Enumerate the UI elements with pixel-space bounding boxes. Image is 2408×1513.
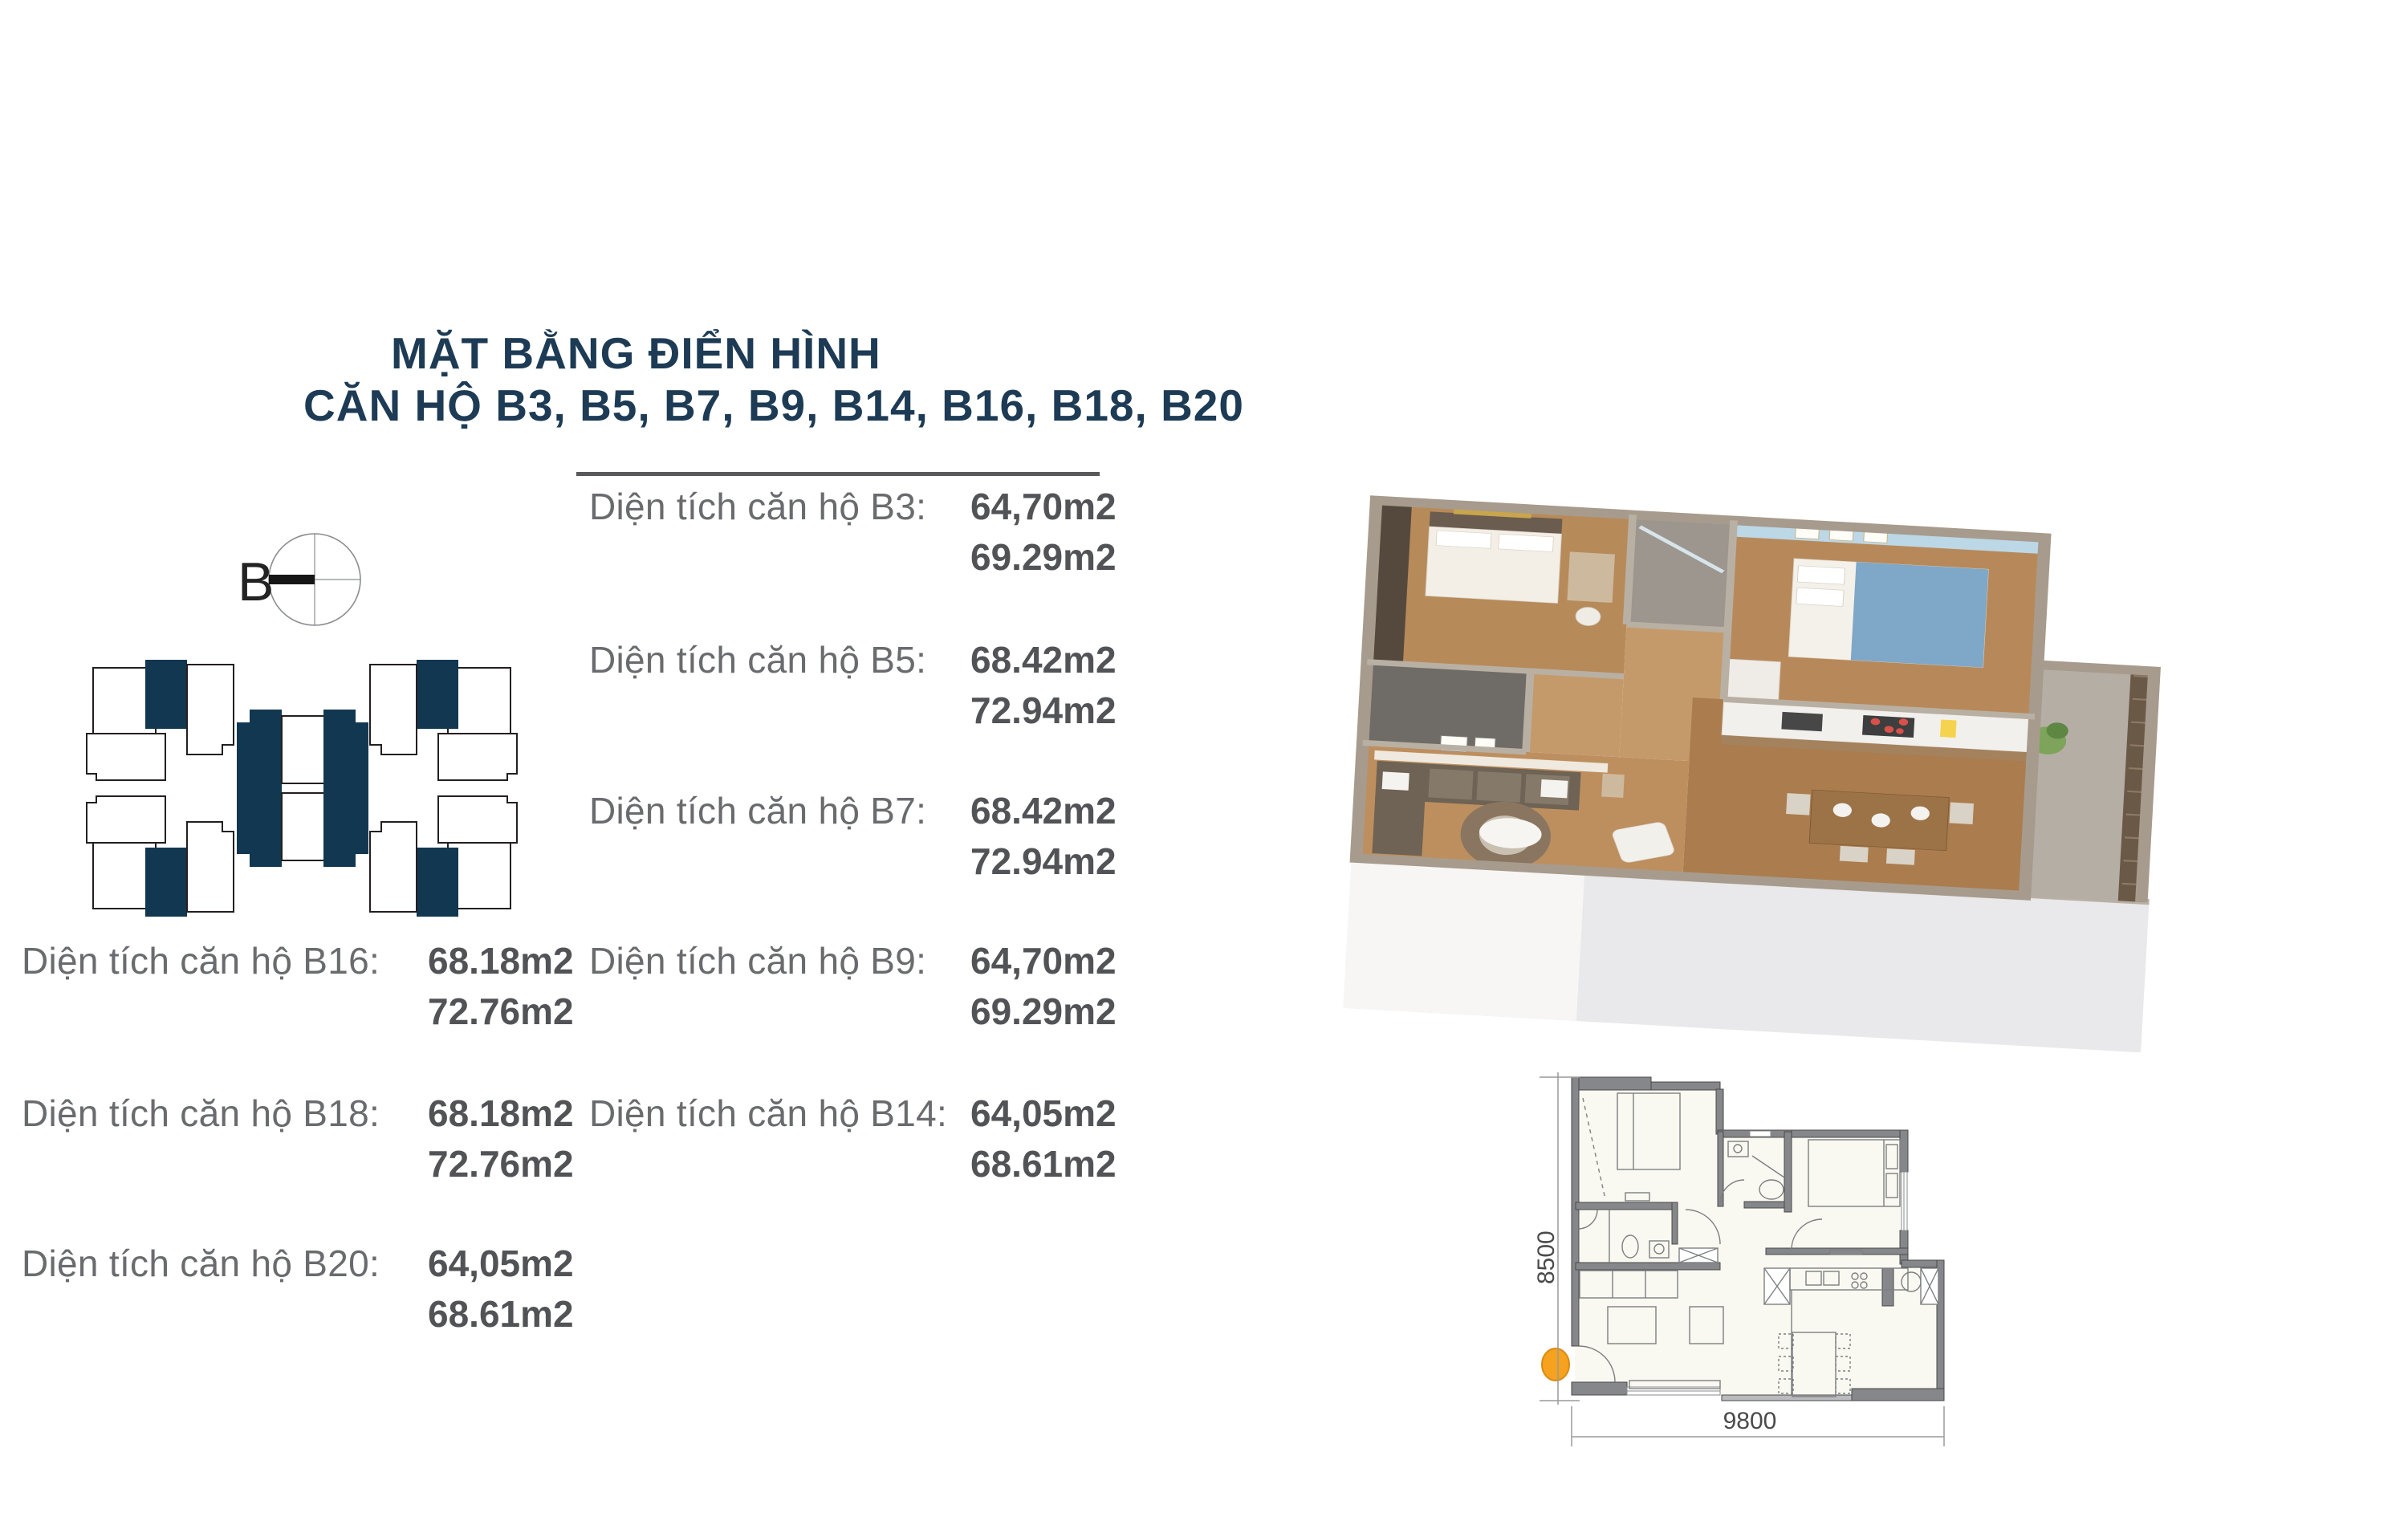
area-row-b20-values: 64,05m2 68.61m2	[428, 1238, 574, 1340]
dimension-height-label: 8500	[1533, 1230, 1560, 1284]
dining-chair	[1786, 793, 1811, 815]
area-row-b14-label: Diện tích căn hộ B14:	[589, 1088, 947, 1139]
dining-chair	[1950, 803, 1975, 825]
area-row-b7-label: Diện tích căn hộ B7:	[589, 786, 926, 836]
area-value: 68.42m2	[970, 786, 1117, 836]
bathroom1-floor	[1627, 515, 1735, 630]
area-value: 64,70m2	[970, 482, 1117, 532]
area-value: 68.61m2	[428, 1289, 574, 1340]
area-value: 64,05m2	[970, 1088, 1117, 1139]
area-value: 64,05m2	[428, 1238, 574, 1289]
area-value: 68.18m2	[428, 936, 574, 986]
area-value: 68.42m2	[970, 635, 1117, 685]
unit-cluster-top-right	[370, 660, 517, 780]
desk	[1567, 551, 1615, 603]
area-row-b3-label: Diện tích căn hộ B3:	[589, 482, 926, 532]
area-row-b16-label: Diện tích căn hộ B16:	[22, 936, 380, 986]
side-table	[1601, 774, 1625, 798]
site-plan-diagram	[72, 650, 538, 927]
area-row-b18-label: Diện tích căn hộ B18:	[22, 1088, 380, 1139]
kitchen-sink	[1781, 712, 1823, 731]
area-row-b9-label: Diện tích căn hộ B9:	[589, 936, 926, 986]
area-row-b5-label: Diện tích căn hộ B5:	[589, 635, 926, 685]
area-value: 68.61m2	[970, 1139, 1117, 1190]
area-row-b16-values: 68.18m2 72.76m2	[428, 936, 574, 1037]
area-value: 64,70m2	[970, 936, 1117, 986]
kitchen-accessory	[1940, 719, 1957, 738]
area-row-b5-values: 68.42m2 72.94m2	[970, 635, 1117, 736]
unit-cluster-top-left	[87, 660, 234, 780]
page-title-line2: CĂN HỘ B3, B5, B7, B9, B14, B16, B18, B2…	[303, 380, 1244, 431]
compass: B	[217, 514, 393, 650]
area-row-b7-values: 68.42m2 72.94m2	[970, 786, 1117, 887]
unit-cluster-bottom-left	[87, 796, 234, 917]
sofa-pillow	[1382, 771, 1409, 790]
brochure-page: MẶT BẰNG ĐIỂN HÌNH CĂN HỘ B3, B5, B7, B9…	[0, 0, 2408, 1513]
divider-rule	[576, 472, 1100, 476]
dining-chair	[1886, 848, 1915, 865]
unit-highlight-center-bottom	[237, 783, 368, 867]
bed2-blue-blanket	[1851, 562, 1988, 667]
area-row-b14-values: 64,05m2 68.61m2	[970, 1088, 1117, 1190]
dimension-width-label: 9800	[1723, 1408, 1777, 1434]
apartment-3d-render	[1316, 437, 2408, 1088]
compass-label: B	[238, 551, 274, 612]
render-front-face-white	[1343, 858, 1584, 1021]
area-row-b18-values: 68.18m2 72.76m2	[428, 1088, 574, 1190]
area-row-b9-values: 64,70m2 69.29m2	[970, 936, 1117, 1037]
area-value: 69.29m2	[970, 986, 1117, 1037]
unit-highlight-center-top	[237, 710, 368, 793]
area-value: 72.94m2	[970, 836, 1117, 887]
page-title-line1: MẶT BẰNG ĐIỂN HÌNH	[391, 327, 881, 379]
area-value: 69.29m2	[970, 532, 1117, 583]
unit-cluster-bottom-right	[370, 796, 517, 917]
apartment-2d-floorplan: 8500 9800	[1517, 1064, 1983, 1513]
sofa-pillow	[1540, 779, 1568, 798]
corridor-floor	[1526, 671, 1624, 757]
area-value: 72.76m2	[428, 1139, 574, 1190]
area-row-b3-values: 64,70m2 69.29m2	[970, 482, 1117, 583]
dining-chair	[1840, 846, 1869, 863]
north-arrow-icon	[269, 575, 315, 584]
entry-marker	[1542, 1348, 1569, 1381]
area-row-b20-label: Diện tích căn hộ B20:	[22, 1238, 380, 1289]
area-value: 72.94m2	[970, 685, 1117, 736]
area-value: 72.76m2	[428, 986, 574, 1037]
area-value: 68.18m2	[428, 1088, 574, 1139]
